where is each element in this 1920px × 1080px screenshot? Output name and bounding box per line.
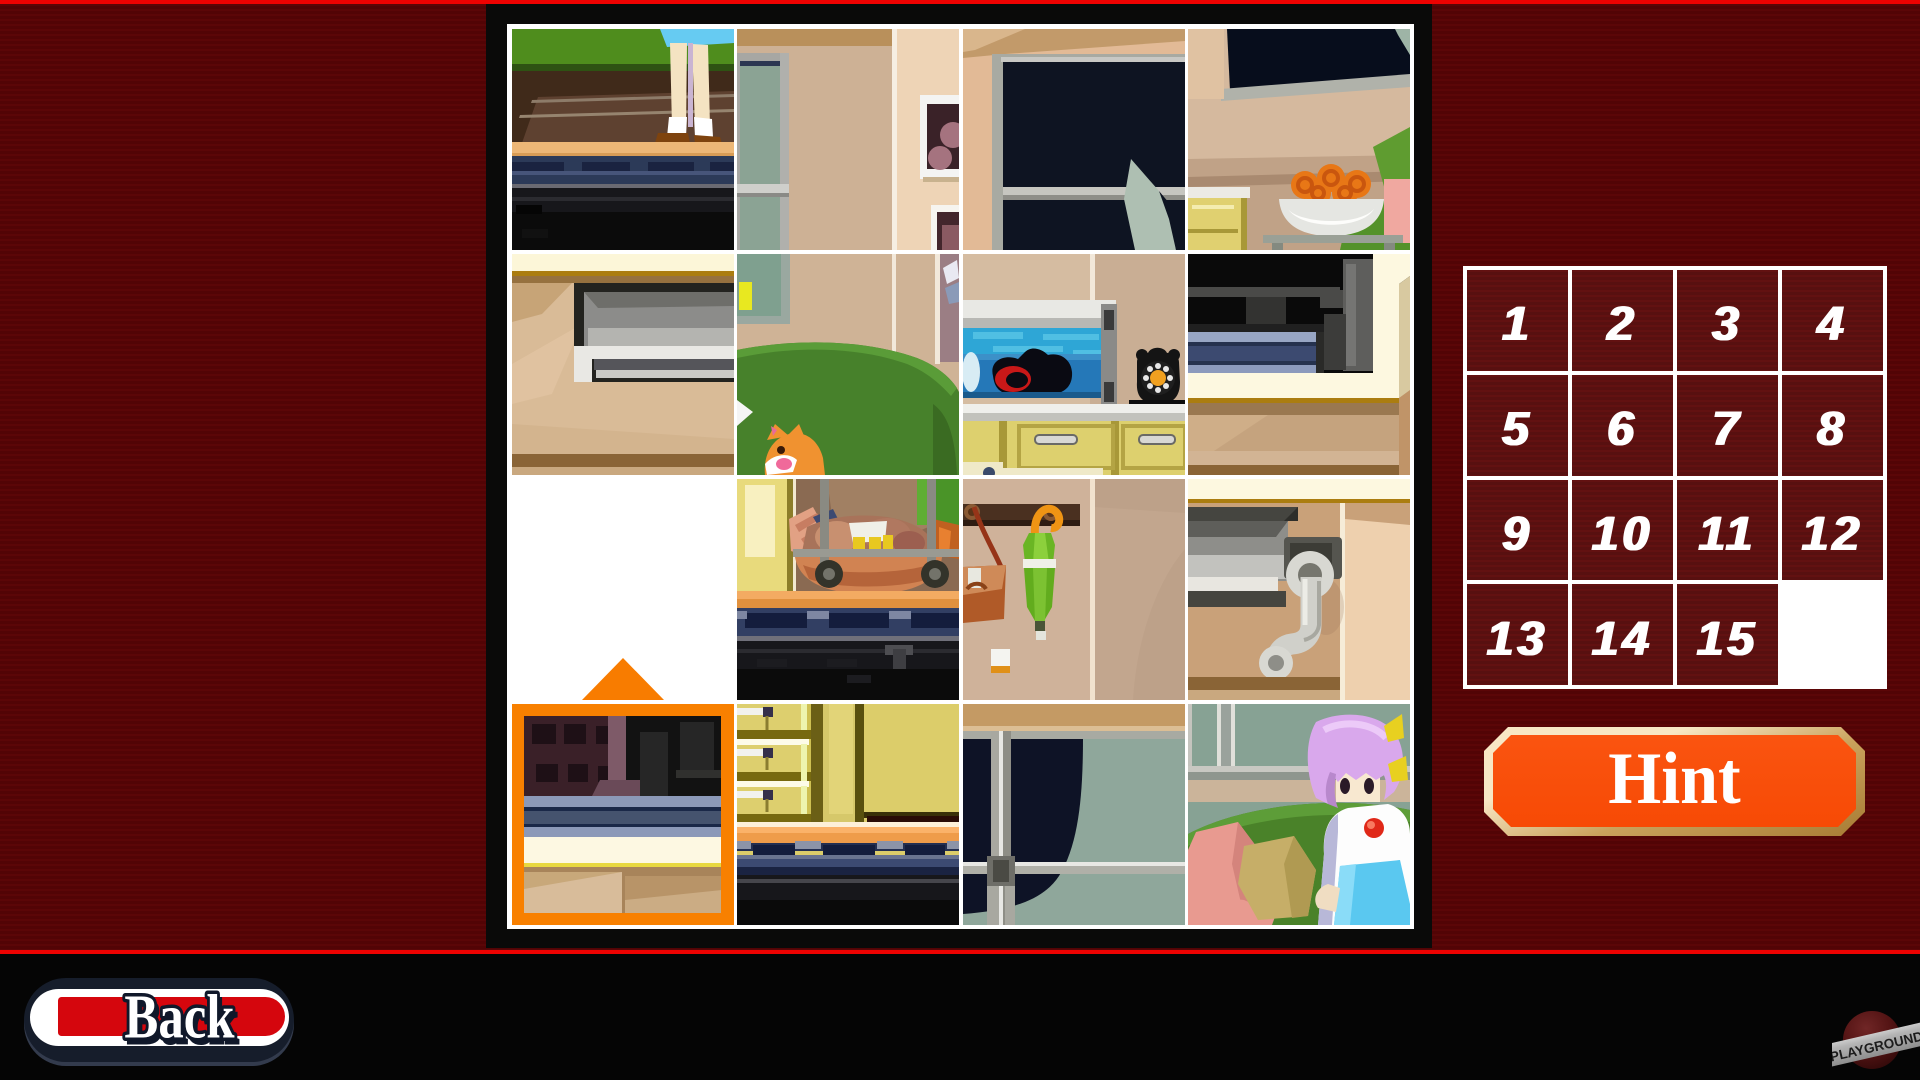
svg-text:Back: Back <box>124 983 235 1052</box>
